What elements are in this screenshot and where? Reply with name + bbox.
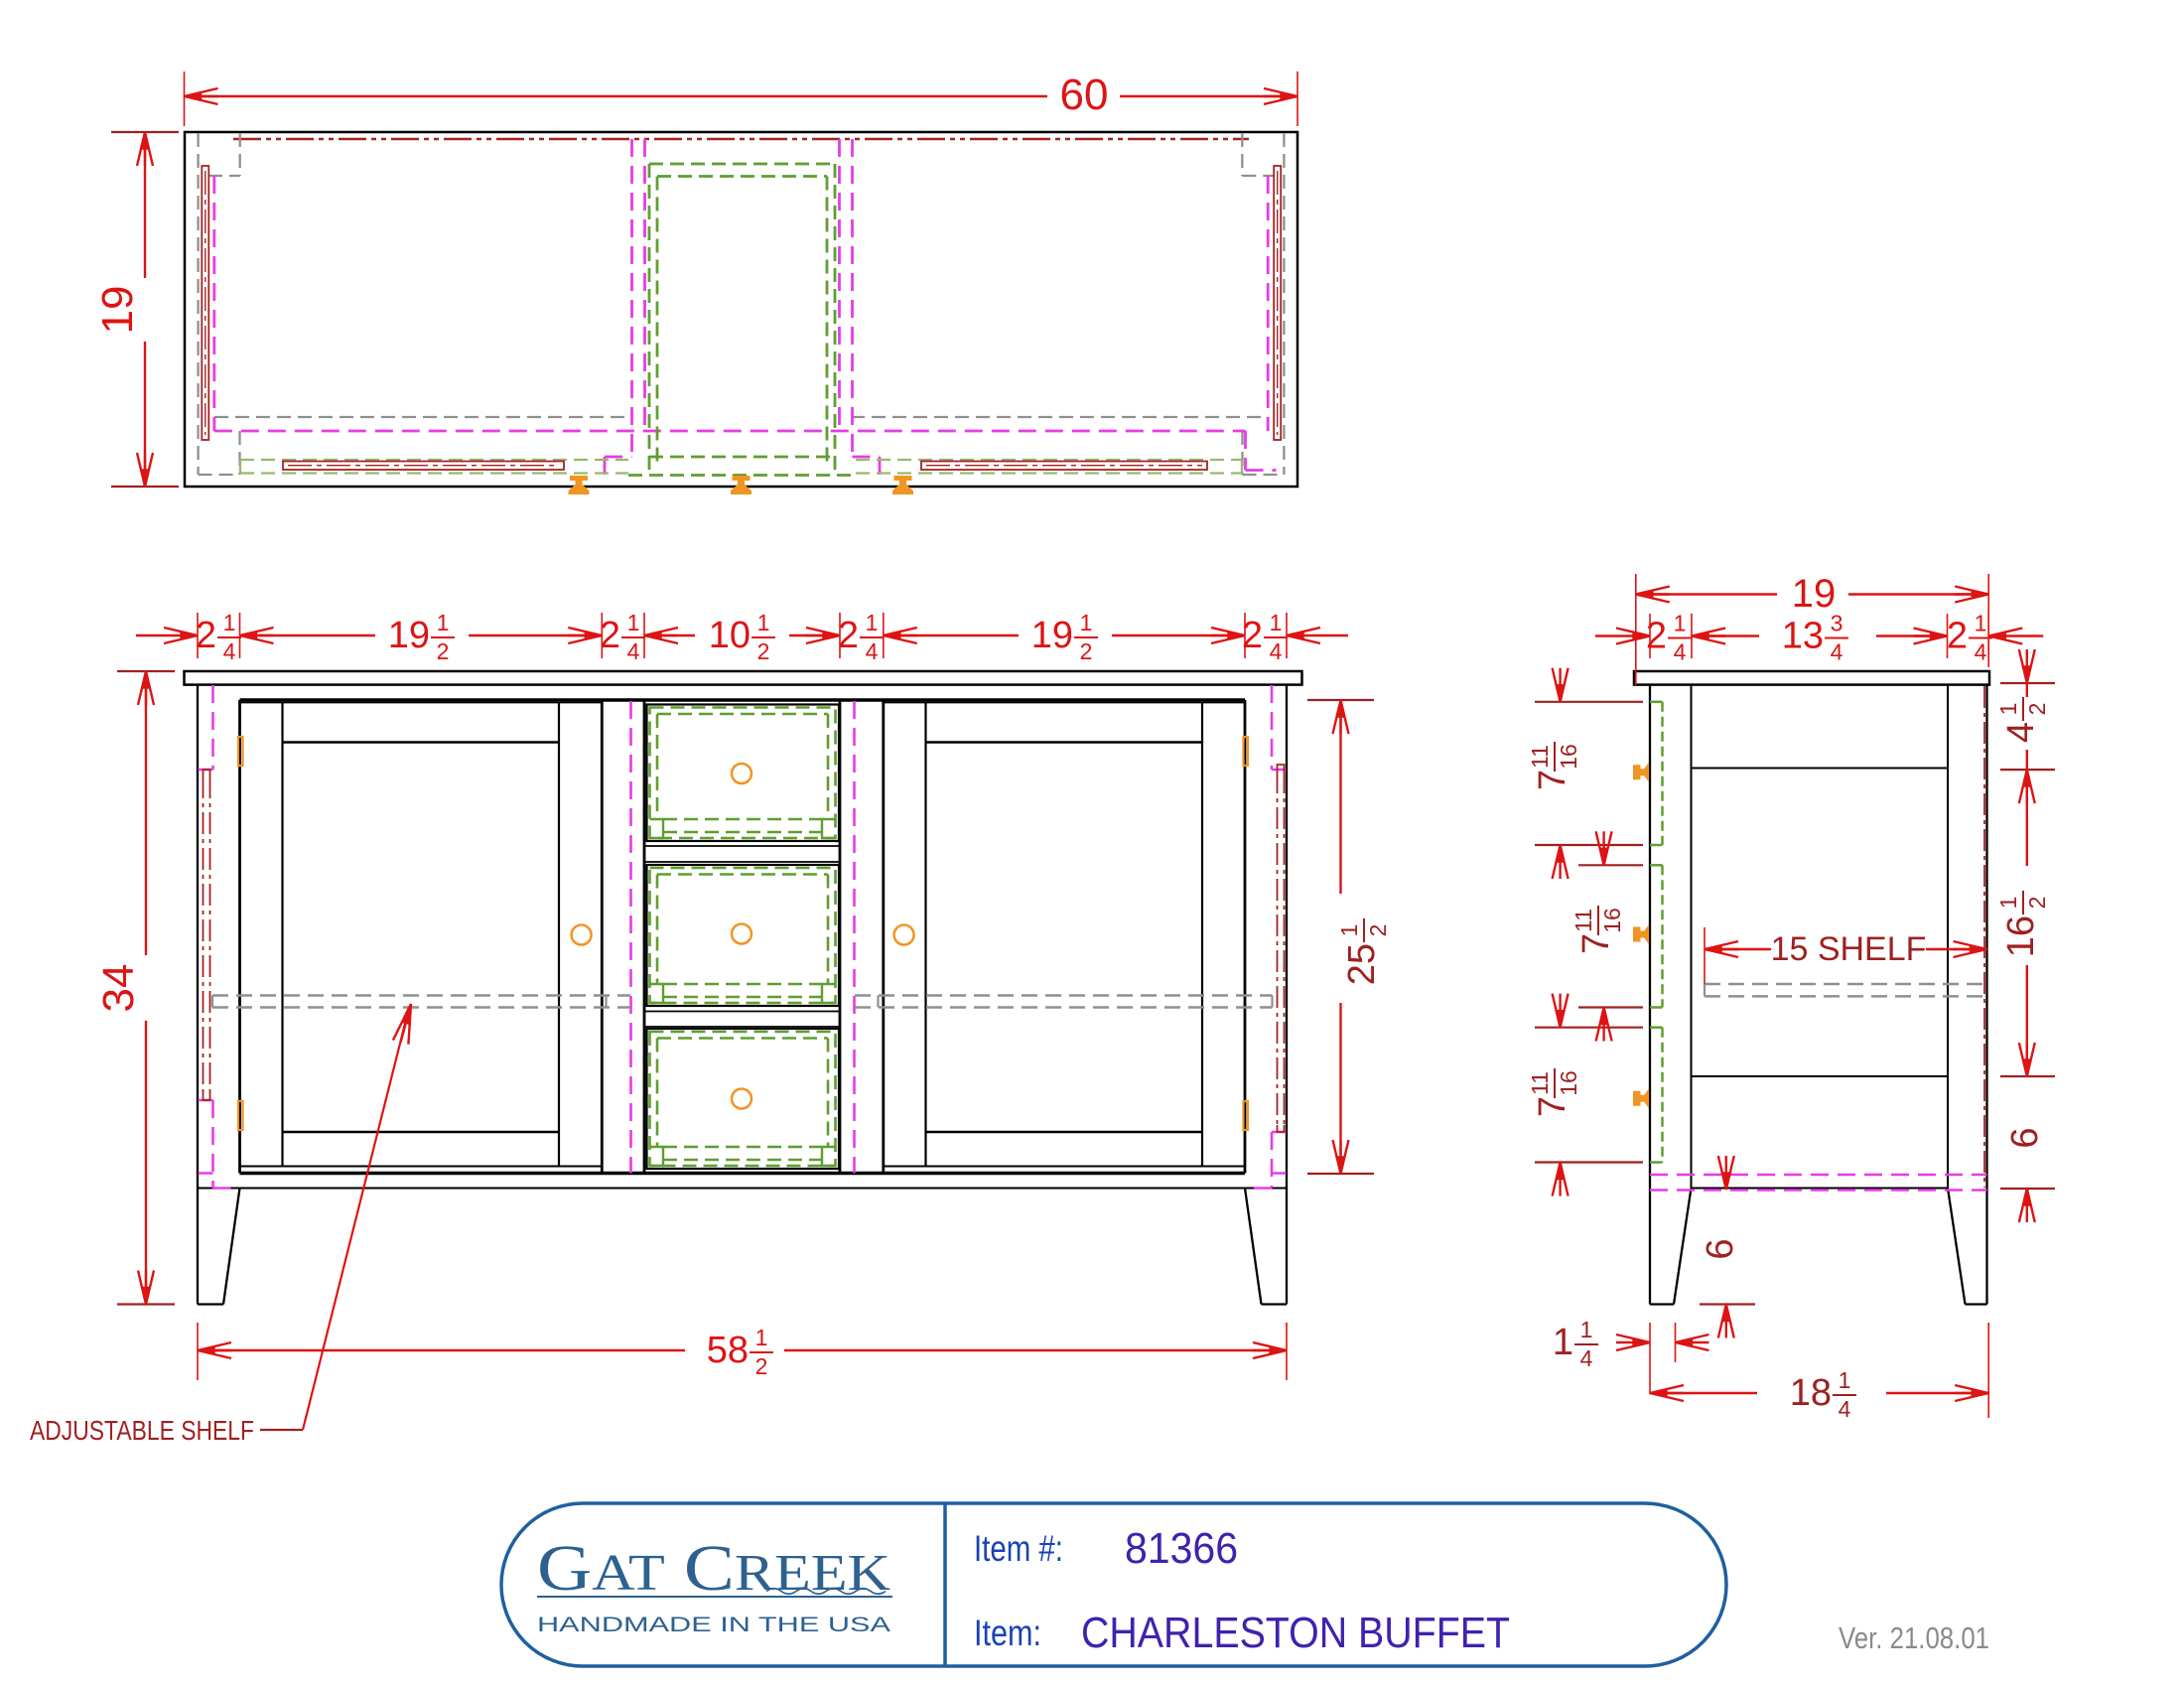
svg-text:11: 11 — [1527, 745, 1553, 769]
svg-text:60: 60 — [1060, 70, 1109, 119]
svg-text:10: 10 — [709, 615, 751, 656]
svg-text:16: 16 — [1556, 744, 1581, 770]
svg-text:4: 4 — [627, 638, 640, 664]
svg-text:1: 1 — [757, 610, 770, 635]
svg-text:81366: 81366 — [1125, 1524, 1238, 1573]
svg-text:2: 2 — [2024, 703, 2050, 716]
svg-text:1: 1 — [627, 610, 640, 635]
svg-text:1: 1 — [1674, 611, 1687, 636]
svg-text:4: 4 — [1975, 639, 1987, 665]
svg-text:1: 1 — [1580, 1317, 1593, 1342]
svg-text:2: 2 — [838, 615, 859, 656]
svg-text:1: 1 — [1995, 897, 2021, 910]
svg-text:1: 1 — [1995, 703, 2021, 716]
svg-text:19: 19 — [388, 615, 430, 656]
svg-text:4: 4 — [866, 638, 879, 664]
svg-text:1: 1 — [866, 610, 879, 635]
svg-text:2: 2 — [1365, 924, 1391, 937]
svg-text:6: 6 — [1700, 1238, 1741, 1259]
svg-text:16: 16 — [1556, 1070, 1581, 1096]
svg-text:1: 1 — [755, 1325, 768, 1350]
svg-text:16: 16 — [2000, 915, 2042, 957]
svg-text:4: 4 — [2000, 722, 2042, 743]
svg-text:1: 1 — [1270, 610, 1283, 635]
svg-text:25: 25 — [1341, 943, 1383, 985]
svg-text:1: 1 — [1839, 1367, 1851, 1393]
svg-text:4: 4 — [1839, 1396, 1851, 1422]
svg-text:4: 4 — [1674, 639, 1687, 665]
svg-text:15 SHELF: 15 SHELF — [1771, 930, 1927, 968]
svg-text:HANDMADE IN THE USA: HANDMADE IN THE USA — [537, 1614, 890, 1636]
svg-text:1: 1 — [1336, 924, 1362, 937]
svg-text:4: 4 — [1580, 1345, 1593, 1371]
svg-text:1: 1 — [223, 610, 236, 635]
svg-text:11: 11 — [1570, 909, 1596, 932]
svg-text:CHARLESTON BUFFET: CHARLESTON BUFFET — [1081, 1609, 1510, 1657]
svg-text:2: 2 — [437, 638, 450, 664]
svg-text:2: 2 — [757, 638, 770, 664]
svg-text:Ver. 21.08.01: Ver. 21.08.01 — [1839, 1620, 1989, 1655]
svg-text:18: 18 — [1790, 1372, 1832, 1414]
svg-text:2: 2 — [1080, 638, 1093, 664]
svg-text:1: 1 — [1080, 610, 1093, 635]
svg-text:2: 2 — [1242, 615, 1263, 656]
svg-text:Item:: Item: — [974, 1613, 1041, 1653]
svg-text:11: 11 — [1527, 1071, 1553, 1095]
svg-text:2: 2 — [1646, 616, 1667, 657]
svg-text:58: 58 — [707, 1330, 749, 1371]
svg-text:ADJUSTABLE SHELF: ADJUSTABLE SHELF — [30, 1415, 254, 1446]
svg-text:4: 4 — [1831, 639, 1843, 665]
svg-text:1: 1 — [1553, 1322, 1573, 1363]
svg-text:4: 4 — [1270, 638, 1283, 664]
svg-text:7: 7 — [1532, 1096, 1573, 1117]
svg-text:16: 16 — [1599, 908, 1625, 933]
svg-text:19: 19 — [1792, 572, 1837, 616]
svg-text:34: 34 — [94, 964, 143, 1013]
svg-text:7: 7 — [1532, 770, 1573, 790]
svg-text:19: 19 — [93, 286, 142, 335]
svg-text:2: 2 — [196, 615, 216, 656]
svg-text:19: 19 — [1031, 615, 1073, 656]
svg-text:13: 13 — [1782, 616, 1824, 657]
svg-text:6: 6 — [2004, 1127, 2046, 1148]
svg-text:2: 2 — [2024, 897, 2050, 910]
svg-text:1: 1 — [437, 610, 450, 635]
svg-text:2: 2 — [1947, 616, 1968, 657]
svg-text:7: 7 — [1575, 933, 1617, 954]
svg-text:2: 2 — [755, 1353, 768, 1379]
svg-text:4: 4 — [223, 638, 236, 664]
svg-text:1: 1 — [1975, 611, 1987, 636]
svg-text:3: 3 — [1831, 611, 1843, 636]
svg-text:Item #:: Item #: — [974, 1528, 1063, 1569]
svg-text:2: 2 — [600, 615, 620, 656]
